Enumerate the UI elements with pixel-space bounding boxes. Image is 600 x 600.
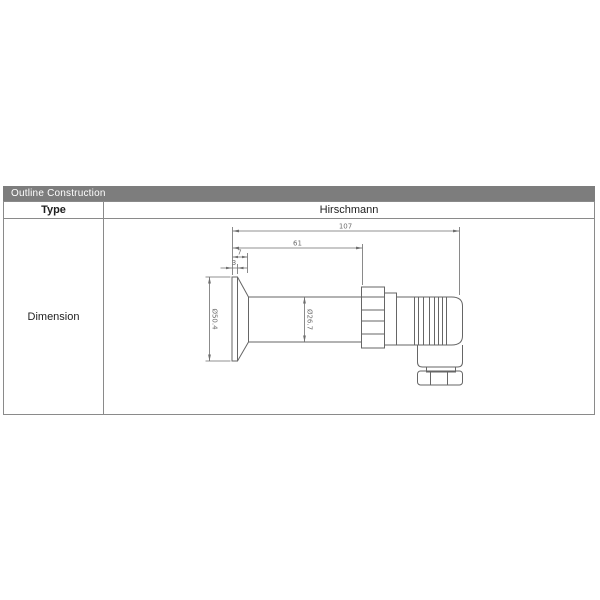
datasheet-page: Outline Construction Type Hirschmann Dim… [0,0,600,600]
gland-hex-flats [431,371,448,385]
dimension-label: Dimension [28,311,80,323]
type-value: Hirschmann [320,204,379,216]
flange-cone [238,277,249,361]
dim-text-61: 61 [293,240,302,248]
hex-nut [362,287,385,348]
gland-hex-nut [418,371,463,385]
section-header-bar: Outline Construction [3,186,595,201]
table-row-type: Type Hirschmann [4,202,594,219]
dim-flange-depth: 7 [233,249,248,259]
dim-text-26-7: Ø26.7 [306,309,314,330]
dimension-label-cell: Dimension [4,219,104,414]
outline-construction-table: Type Hirschmann Dimension [3,201,595,415]
hex-nut-flats [362,297,385,334]
table-row-dimension: Dimension [4,219,594,414]
dim-text-7: 7 [237,249,241,257]
connector-ribs [415,297,447,345]
dim-text-107: 107 [339,223,352,231]
dim-diaphragm-thickness: 3 [221,259,248,269]
elbow-housing [418,345,463,367]
body-cylinder [249,297,362,342]
type-label: Type [41,204,66,216]
dim-flange-diameter: Ø50.4 [208,277,218,361]
dimension-drawing-cell: 107 61 [104,219,594,414]
dimension-annotations: 107 61 [206,223,460,362]
dim-text-3: 3 [232,259,236,267]
transmitter-outline [232,277,463,385]
section-title: Outline Construction [11,188,106,199]
sensor-outline-drawing: 107 61 [104,219,594,414]
dim-body-length: 61 [233,240,363,250]
type-value-cell: Hirschmann [104,202,594,218]
dim-overall-length: 107 [233,223,460,233]
collar-step [385,293,397,345]
dim-body-diameter: Ø26.7 [303,297,313,342]
type-label-cell: Type [4,202,104,218]
flange-face [232,277,238,361]
extension-lines [206,227,460,361]
dim-text-50-4: Ø50.4 [211,308,219,330]
